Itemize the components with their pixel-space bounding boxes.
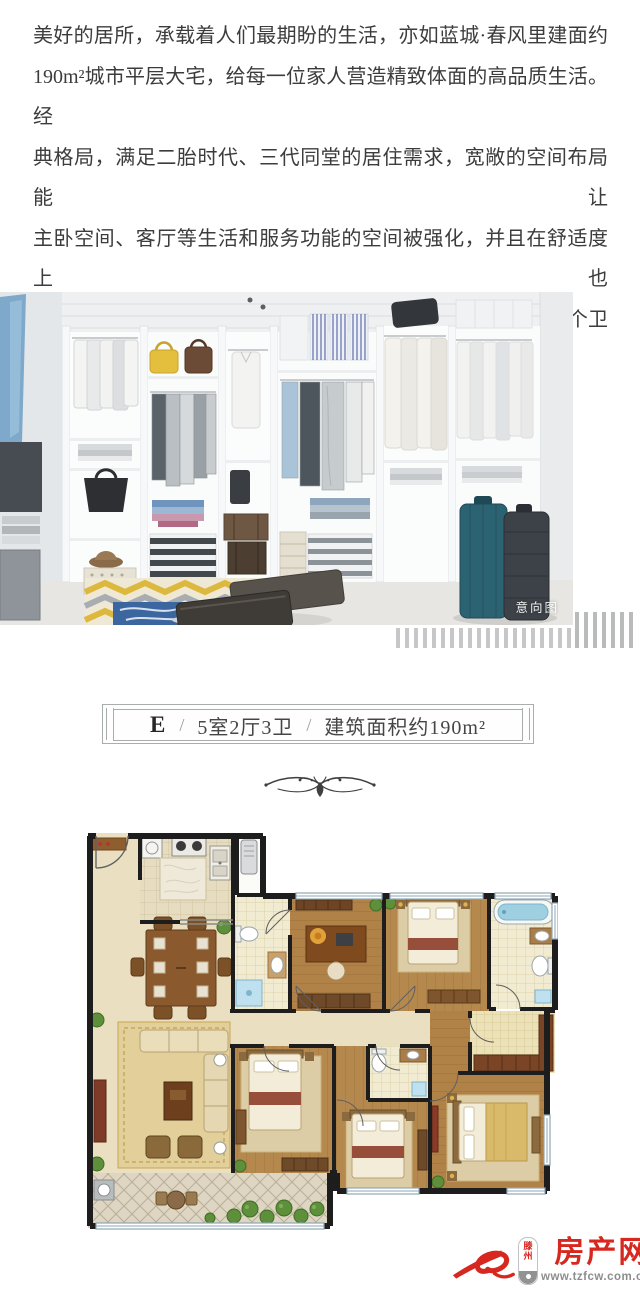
logo-capsule-foot bbox=[519, 1271, 537, 1284]
intro-line: 典格局，满足二胎时代、三代同堂的居住需求，宽敞的空间布局能让 bbox=[33, 138, 608, 219]
barcode-decoration-icon bbox=[394, 608, 640, 650]
logo-city-top: 滕 bbox=[523, 1241, 532, 1251]
barcode-short-bars bbox=[396, 628, 575, 648]
logo-url: www.tzfcw.com.cn bbox=[541, 1271, 640, 1283]
unit-plaque: E / 5室2厅3卫 / 建筑面积约190m² bbox=[102, 704, 534, 744]
separator: / bbox=[179, 715, 184, 736]
intro-line: 190m²城市平层大宅，给每一位家人营造精致体面的高品质生活。经 bbox=[33, 57, 608, 138]
logo-city-capsule: 滕 州 bbox=[518, 1237, 538, 1285]
plaque-frame: E / 5室2厅3卫 / 建筑面积约190m² bbox=[113, 709, 523, 741]
flourish-divider-icon bbox=[258, 768, 382, 800]
floor-plan-image bbox=[84, 830, 558, 1232]
brand-logo: 滕 州 房产网 www.tzfcw.com.cn bbox=[452, 1236, 640, 1292]
page: 美好的居所，承载着人们最期盼的生活，亦如蓝城·春风里建面约 190m²城市平层大… bbox=[0, 0, 640, 1294]
logo-brand-text: 房产网 bbox=[554, 1236, 640, 1270]
wardrobe-photo: 意向图 bbox=[0, 292, 573, 625]
intro-line: 主卧空间、客厅等生活和服务功能的空间被强化，并且在舒适度上也 bbox=[33, 219, 608, 300]
logo-swoosh-icon bbox=[452, 1240, 520, 1290]
unit-label: E bbox=[150, 712, 166, 738]
separator: / bbox=[306, 715, 311, 736]
barcode-tall-bars bbox=[575, 612, 637, 648]
intro-line: 美好的居所，承载着人们最期盼的生活，亦如蓝城·春风里建面约 bbox=[33, 16, 608, 57]
logo-city-bottom: 州 bbox=[523, 1251, 532, 1261]
area-label: 建筑面积约190m² bbox=[324, 711, 486, 740]
layout-label: 5室2厅3卫 bbox=[197, 711, 293, 740]
wardrobe-photo-art bbox=[0, 292, 573, 625]
